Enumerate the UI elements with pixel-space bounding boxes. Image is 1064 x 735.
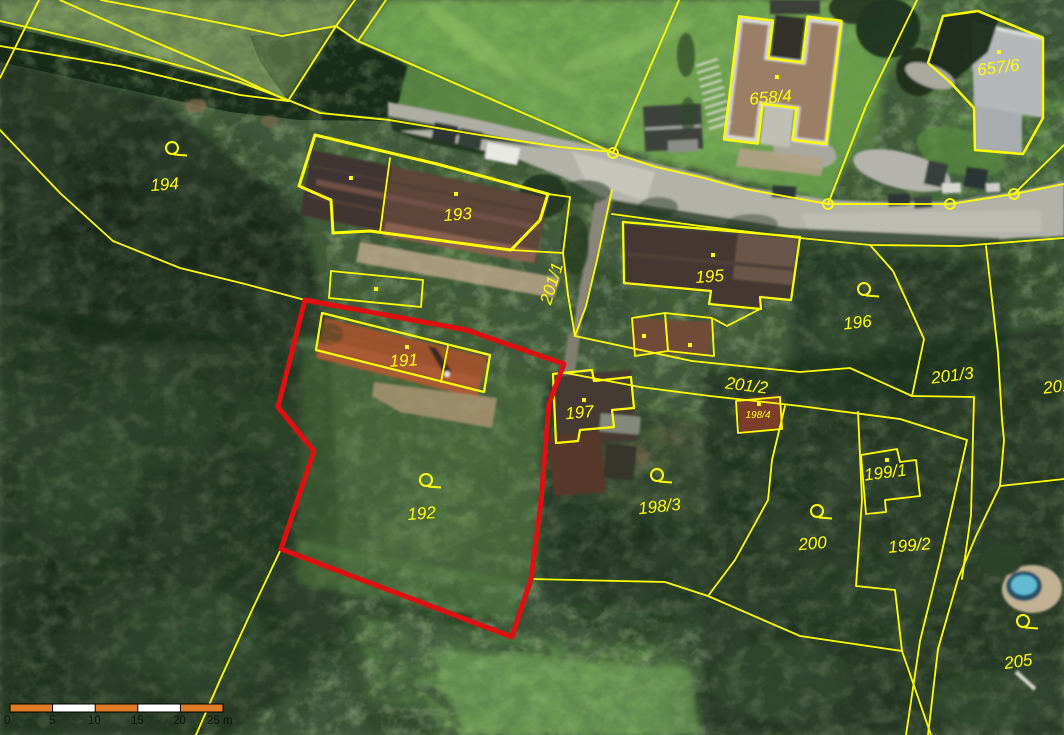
svg-text:196: 196 bbox=[842, 312, 873, 334]
svg-text:658/4: 658/4 bbox=[749, 86, 793, 109]
svg-text:199/2: 199/2 bbox=[888, 534, 933, 557]
svg-text:192: 192 bbox=[407, 503, 437, 524]
svg-text:193: 193 bbox=[443, 204, 473, 225]
svg-text:10: 10 bbox=[88, 715, 101, 727]
svg-text:25 m: 25 m bbox=[207, 715, 233, 727]
svg-text:20: 20 bbox=[173, 715, 186, 727]
svg-text:0: 0 bbox=[4, 715, 10, 727]
svg-text:198/4: 198/4 bbox=[745, 410, 770, 421]
svg-text:200: 200 bbox=[797, 533, 828, 555]
svg-text:5: 5 bbox=[49, 715, 55, 727]
svg-text:195: 195 bbox=[695, 266, 725, 287]
svg-text:15: 15 bbox=[131, 715, 144, 727]
svg-text:194: 194 bbox=[150, 174, 180, 195]
svg-text:191: 191 bbox=[389, 350, 418, 370]
svg-text:197: 197 bbox=[565, 402, 595, 423]
svg-text:201: 201 bbox=[1041, 375, 1064, 397]
